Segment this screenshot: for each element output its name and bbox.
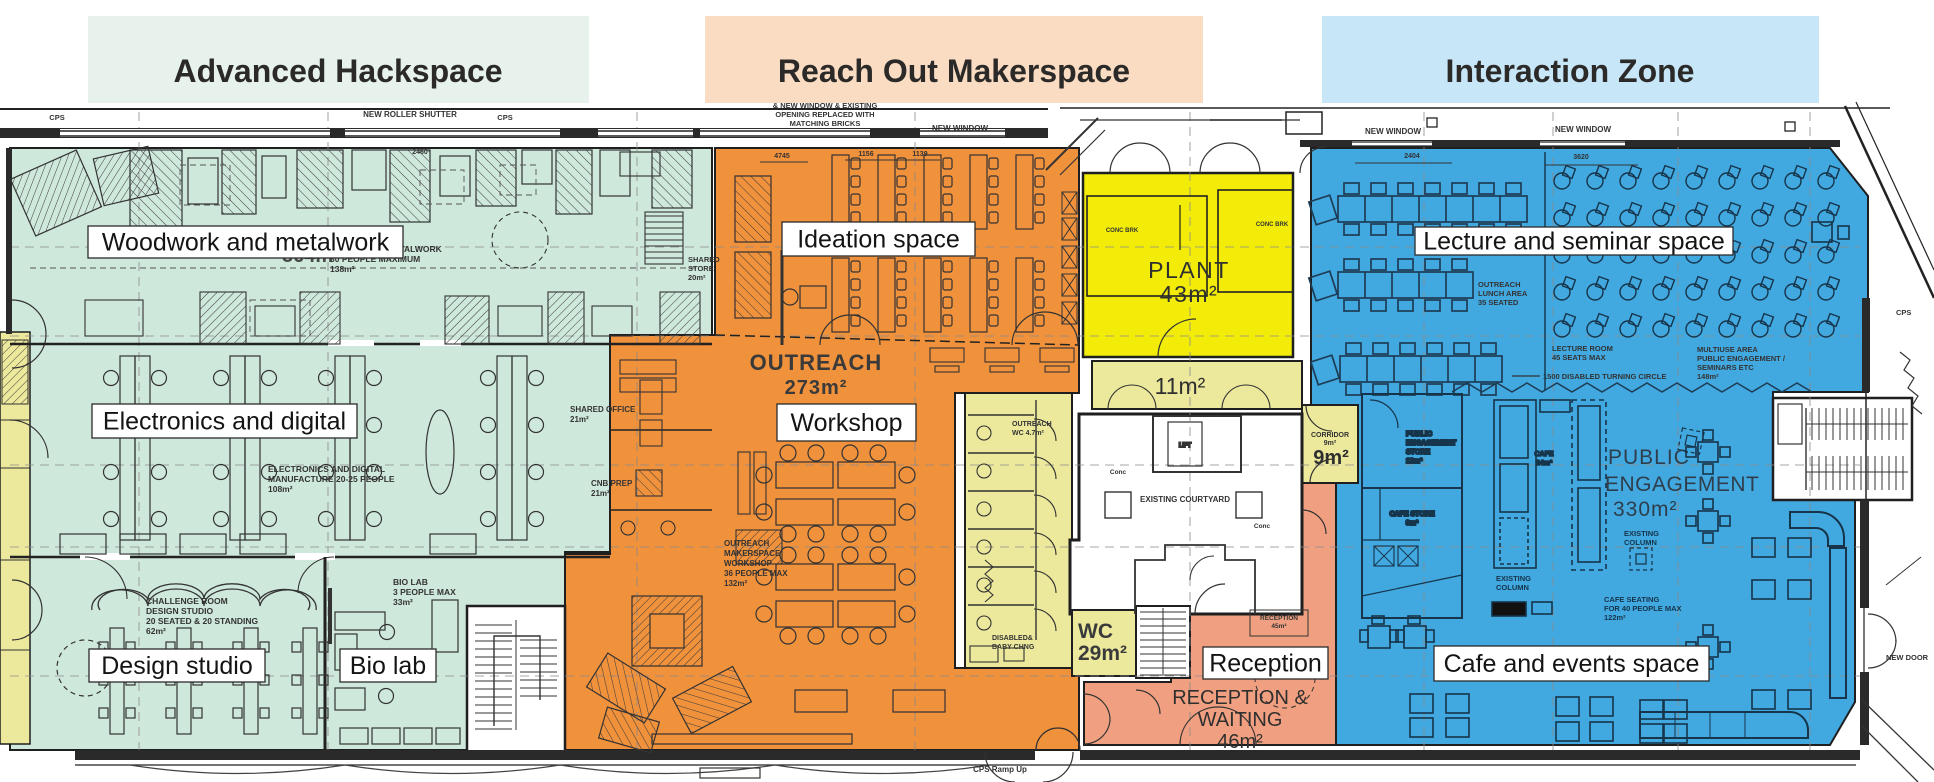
svg-text:45 SEATS MAX: 45 SEATS MAX — [1552, 353, 1606, 362]
svg-text:CHALLENGE ROOM: CHALLENGE ROOM — [146, 596, 228, 606]
svg-text:EXISTING: EXISTING — [1624, 529, 1659, 538]
svg-text:WC: WC — [1078, 620, 1113, 643]
svg-text:35 SEATED: 35 SEATED — [1478, 298, 1519, 307]
svg-text:122m²: 122m² — [1604, 613, 1626, 622]
svg-text:ENGAGEMENT: ENGAGEMENT — [1605, 473, 1759, 496]
svg-text:62m²: 62m² — [146, 626, 166, 636]
svg-text:Conc: Conc — [1254, 523, 1271, 530]
svg-text:DESIGN STUDIO: DESIGN STUDIO — [146, 606, 213, 616]
svg-text:LUNCH AREA: LUNCH AREA — [1478, 289, 1528, 298]
svg-text:1156: 1156 — [858, 151, 873, 158]
svg-text:2404: 2404 — [1404, 153, 1420, 160]
svg-text:PUBLIC: PUBLIC — [1406, 431, 1432, 438]
svg-text:CAFE: CAFE — [1534, 451, 1553, 458]
svg-text:NEW DOOR: NEW DOOR — [1886, 653, 1929, 662]
svg-text:29m²: 29m² — [1078, 642, 1127, 665]
svg-text:21m²: 21m² — [570, 415, 589, 424]
svg-text:33m²: 33m² — [393, 597, 413, 607]
svg-text:SHARED OFFICE: SHARED OFFICE — [570, 405, 636, 414]
svg-text:3 PEOPLE MAX: 3 PEOPLE MAX — [393, 587, 456, 597]
svg-text:CPS: CPS — [1896, 308, 1911, 317]
svg-text:CPS: CPS — [49, 113, 64, 122]
svg-text:12m²: 12m² — [1406, 458, 1423, 465]
svg-text:DISABLED&: DISABLED& — [992, 635, 1033, 642]
svg-text:LIFT: LIFT — [1179, 443, 1192, 449]
svg-text:EXISTING: EXISTING — [1496, 574, 1531, 583]
svg-text:BIO LAB: BIO LAB — [393, 577, 428, 587]
svg-text:NEW WINDOW: NEW WINDOW — [1555, 125, 1611, 134]
svg-text:WC 4.7m²: WC 4.7m² — [1012, 430, 1045, 437]
svg-text:ENGAGEMENT: ENGAGEMENT — [1406, 440, 1457, 447]
svg-text:CNB PREP: CNB PREP — [591, 479, 633, 488]
svg-text:Cafe and events space: Cafe and events space — [1444, 650, 1700, 678]
svg-text:4745: 4745 — [774, 153, 790, 160]
svg-text:LECTURE ROOM: LECTURE ROOM — [1552, 344, 1613, 353]
svg-text:1139: 1139 — [912, 151, 927, 158]
svg-text:SHARED: SHARED — [688, 255, 720, 264]
svg-text:ELECTRONICS AND DIGITAL: ELECTRONICS AND DIGITAL — [268, 464, 385, 474]
svg-text:9m²: 9m² — [1406, 520, 1419, 527]
svg-text:Bio lab: Bio lab — [350, 652, 426, 680]
svg-text:21m²: 21m² — [591, 489, 610, 498]
svg-text:WAITING: WAITING — [1198, 709, 1283, 731]
svg-text:FOR 40 PEOPLE MAX: FOR 40 PEOPLE MAX — [1604, 604, 1682, 613]
svg-text:148m²: 148m² — [1697, 372, 1719, 381]
svg-text:Reception: Reception — [1209, 650, 1322, 678]
svg-text:OUTREACH: OUTREACH — [750, 350, 883, 375]
svg-text:COLUMN: COLUMN — [1496, 583, 1529, 592]
svg-text:11m²: 11m² — [1155, 373, 1206, 399]
svg-text:Electronics and digital: Electronics and digital — [103, 408, 346, 436]
svg-text:STORE: STORE — [1406, 449, 1430, 456]
svg-text:Conc: Conc — [1110, 469, 1127, 476]
svg-text:Advanced Hackspace: Advanced Hackspace — [173, 53, 502, 89]
svg-text:COLUMN: COLUMN — [1624, 538, 1657, 547]
svg-text:PLANT: PLANT — [1148, 257, 1230, 283]
svg-text:CONC BRK: CONC BRK — [1106, 228, 1139, 234]
svg-text:1500 DISABLED TURNING CIRCLE: 1500 DISABLED TURNING CIRCLE — [1543, 372, 1666, 381]
svg-text:CAFE SEATING: CAFE SEATING — [1604, 595, 1659, 604]
svg-text:EXISTING COURTYARD: EXISTING COURTYARD — [1140, 495, 1230, 504]
svg-text:RECEPTION &: RECEPTION & — [1172, 687, 1308, 709]
svg-text:OUTREACH: OUTREACH — [1478, 280, 1521, 289]
svg-text:NEW WINDOW: NEW WINDOW — [1365, 127, 1421, 136]
svg-text:273m²: 273m² — [785, 377, 848, 399]
svg-text:STORE: STORE — [688, 264, 714, 273]
svg-text:Woodwork and metalwork: Woodwork and metalwork — [102, 229, 390, 257]
svg-text:20m²: 20m² — [688, 273, 706, 282]
svg-text:Ideation space: Ideation space — [797, 226, 960, 254]
svg-text:45m²: 45m² — [1271, 623, 1287, 630]
svg-text:SEMINARS ETC: SEMINARS ETC — [1697, 363, 1754, 372]
svg-text:43m²: 43m² — [1160, 281, 1218, 307]
svg-text:132m²: 132m² — [724, 579, 747, 588]
svg-text:OPENING REPLACED WITH: OPENING REPLACED WITH — [775, 110, 874, 119]
svg-text:MATCHING BRICKS: MATCHING BRICKS — [790, 119, 861, 128]
svg-text:CORRIDOR: CORRIDOR — [1311, 432, 1349, 439]
svg-text:9m²: 9m² — [1324, 440, 1337, 447]
svg-text:OUTREACH: OUTREACH — [1012, 421, 1052, 428]
svg-text:9m²: 9m² — [1313, 447, 1349, 469]
svg-text:PUBLIC ENGAGEMENT /: PUBLIC ENGAGEMENT / — [1697, 354, 1786, 363]
svg-text:Reach Out Makerspace: Reach Out Makerspace — [778, 53, 1130, 89]
svg-text:BABY CHNG: BABY CHNG — [992, 644, 1035, 651]
svg-text:Interaction Zone: Interaction Zone — [1446, 53, 1695, 89]
svg-text:108m²: 108m² — [268, 484, 293, 494]
svg-text:CAFE STORE: CAFE STORE — [1390, 511, 1435, 518]
svg-text:20 SEATED & 20 STANDING: 20 SEATED & 20 STANDING — [146, 616, 258, 626]
svg-text:NEW WINDOW: NEW WINDOW — [932, 124, 988, 133]
svg-text:MULTIUSE AREA: MULTIUSE AREA — [1697, 345, 1758, 354]
svg-text:3620: 3620 — [1573, 154, 1589, 161]
svg-text:330m²: 330m² — [1613, 498, 1678, 521]
svg-text:RECEPTION: RECEPTION — [1260, 615, 1298, 622]
svg-text:MANUFACTURE 20-25 PEOPLE: MANUFACTURE 20-25 PEOPLE — [268, 474, 395, 484]
svg-text:Lecture and seminar space: Lecture and seminar space — [1423, 228, 1725, 256]
svg-text:2460: 2460 — [412, 149, 428, 156]
svg-text:CPS: CPS — [497, 113, 512, 122]
svg-text:& NEW WINDOW & EXISTING: & NEW WINDOW & EXISTING — [773, 101, 878, 110]
svg-text:CONC BRK: CONC BRK — [1256, 222, 1289, 228]
svg-text:138m²: 138m² — [330, 264, 355, 274]
svg-text:Workshop: Workshop — [790, 409, 902, 437]
svg-text:Design studio: Design studio — [101, 652, 252, 680]
svg-text:NEW ROLLER SHUTTER: NEW ROLLER SHUTTER — [363, 110, 457, 119]
svg-text:24m²: 24m² — [1536, 460, 1553, 467]
svg-text:CPS Ramp Up: CPS Ramp Up — [973, 765, 1027, 774]
